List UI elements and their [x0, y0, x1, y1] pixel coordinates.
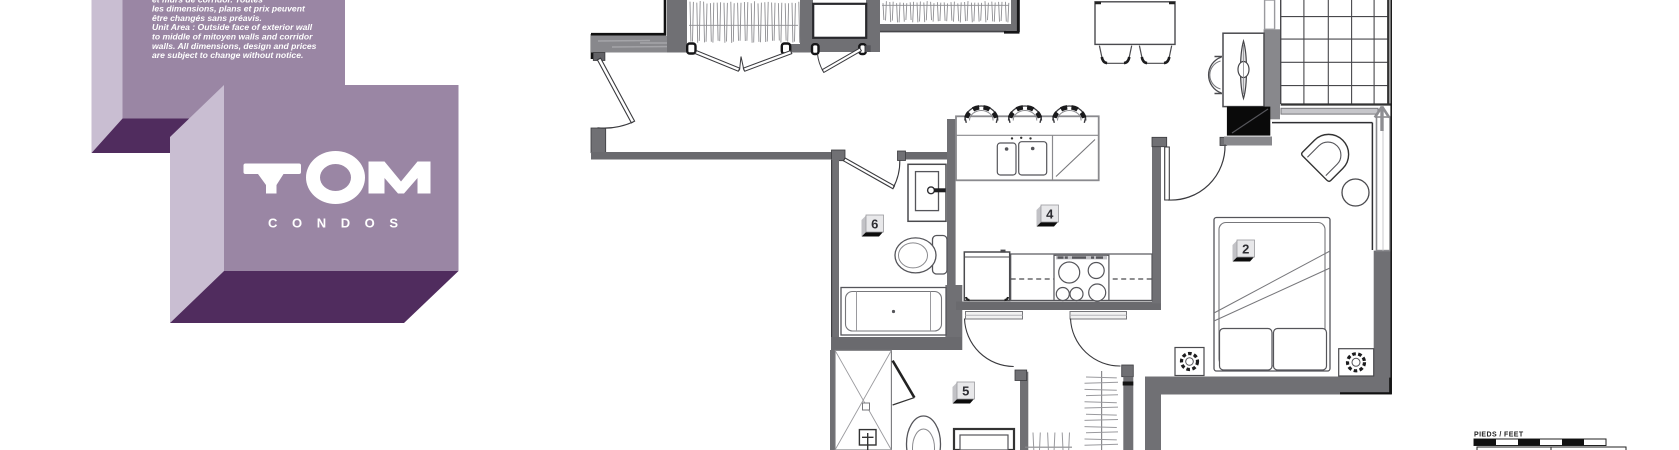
svg-text:are subject to change without: are subject to change without notice.: [152, 50, 303, 60]
svg-text:6: 6: [871, 216, 878, 231]
svg-text:5: 5: [962, 383, 969, 398]
svg-text:PIEDS / FEET: PIEDS / FEET: [1474, 432, 1524, 439]
svg-text:CONDOS: CONDOS: [268, 216, 413, 231]
svg-text:4: 4: [1046, 206, 1054, 221]
svg-text:2: 2: [1242, 241, 1249, 256]
